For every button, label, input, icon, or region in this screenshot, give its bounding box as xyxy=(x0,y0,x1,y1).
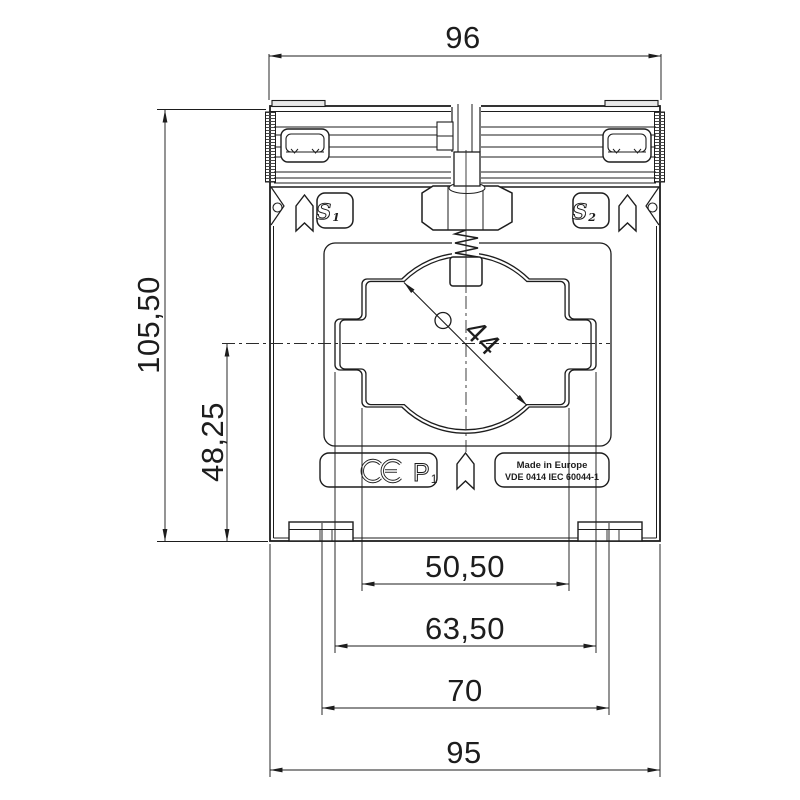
technical-drawing: S1 S2 44 xyxy=(0,0,800,800)
s2-letter: S xyxy=(572,199,587,224)
top-tab-right xyxy=(605,101,658,107)
origin-label: Made in Europe VDE 0414 IEC 60044-1 xyxy=(495,453,609,487)
clamp-spring xyxy=(452,230,479,260)
s2-subscript: 2 xyxy=(587,211,596,224)
dim-overall-height-text: 105,50 xyxy=(131,276,166,374)
dim-window-inner-width-text: 50,50 xyxy=(425,549,505,584)
mount-hole-left xyxy=(273,203,282,212)
s1-subscript: 1 xyxy=(332,211,340,224)
p1-subscript: 1 xyxy=(431,472,438,486)
dim-mounting-spacing-text: 70 xyxy=(447,673,482,708)
s1-letter: S xyxy=(316,199,331,224)
clamp-collar xyxy=(454,152,480,186)
standard-text: VDE 0414 IEC 60044-1 xyxy=(505,472,599,482)
s1-terminal-label: S1 xyxy=(316,193,353,228)
made-in-text: Made in Europe xyxy=(517,460,588,471)
terminal-screw-left xyxy=(281,129,329,162)
ce-p1-label: CE P1 xyxy=(320,453,438,487)
dim-base-width-text: 95 xyxy=(446,735,481,770)
terminal-screw-right xyxy=(603,129,651,162)
dimension-axis-height: 48,25 xyxy=(195,344,230,542)
dim-axis-height-text: 48,25 xyxy=(195,402,230,482)
dim-top-width-text: 96 xyxy=(445,20,480,55)
p1-letter: P xyxy=(413,459,430,487)
mounting-foot-right xyxy=(578,522,642,541)
dim-window-outer-width-text: 63,50 xyxy=(425,611,505,646)
mounting-foot-left xyxy=(289,522,353,541)
s2-terminal-label: S2 xyxy=(572,193,609,228)
top-tab-left xyxy=(272,101,325,107)
dimension-top-width: 96 xyxy=(269,20,661,100)
drawing-page: S1 S2 44 xyxy=(0,0,800,800)
mount-hole-right xyxy=(648,203,657,212)
